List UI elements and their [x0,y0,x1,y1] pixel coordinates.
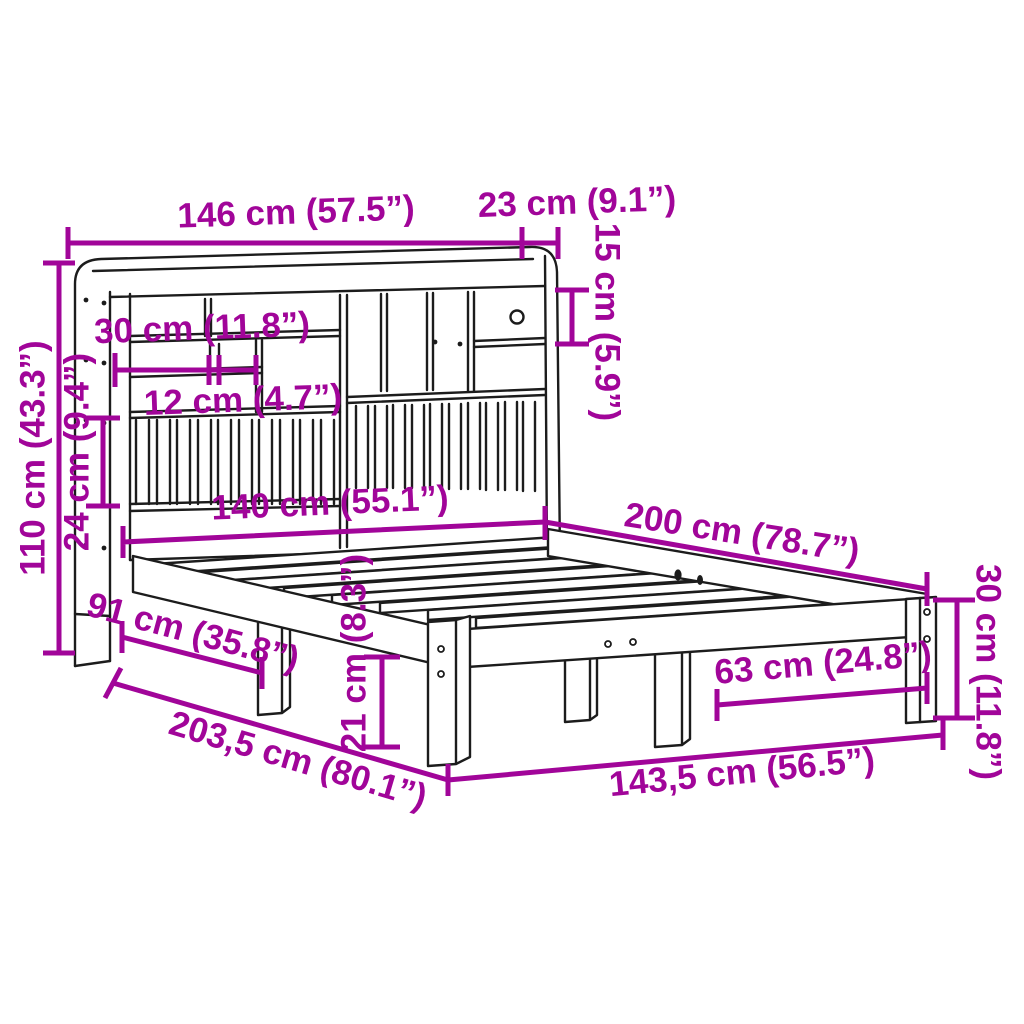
screw-icon [438,671,444,677]
screw-dot [102,361,107,366]
cubby-dot [433,340,438,345]
headboard-top-back-edge [93,259,533,271]
diagram-canvas: 146 cm (57.5”) 23 cm (9.1”) 15 cm (5.9”)… [0,0,1024,1024]
label-drawer-height: 15 cm (5.9”) [588,223,627,421]
label-total-height: 110 cm (43.3”) [14,340,53,575]
headboard-right-dividers [381,293,433,391]
screw-icon [630,639,636,645]
dimension-labels: 146 cm (57.5”) 23 cm (9.1”) 15 cm (5.9”)… [14,179,1008,817]
wood-knot [674,569,681,580]
cubby-dot [458,342,463,347]
bed-leg-front-corner [428,616,470,766]
headboard-right-shelf [347,389,545,403]
label-underbed-clearance: 21 cm (8.3”) [335,554,374,752]
drawer-bottom [474,338,545,347]
screw-icon [924,609,930,615]
screw-icon [438,646,444,652]
dim-line-drawer-height [555,290,589,344]
wood-knot [697,575,703,585]
dimension-diagram: 146 cm (57.5”) 23 cm (9.1”) 15 cm (5.9”)… [0,0,1024,1024]
label-headboard-width: 146 cm (57.5”) [177,188,416,235]
label-frame-height: 30 cm (11.8”) [969,564,1008,780]
label-cubby-width: 12 cm (4.7”) [143,377,343,423]
label-total-length: 203,5 cm (80.1”) [165,703,432,816]
headboard-top-shelf [110,286,545,297]
screw-dot [102,301,107,306]
label-frame-outer-width: 143,5 cm (56.5”) [607,740,876,804]
label-shelf-width: 30 cm (11.8”) [93,305,310,352]
label-bed-inner-width: 140 cm (55.1”) [211,478,450,527]
label-headboard-depth: 23 cm (9.1”) [477,179,677,225]
label-slat-panel-height: 24 cm (9.4”) [58,353,97,551]
screw-icon [605,641,611,647]
screw-dot [84,298,89,303]
screw-dot [102,546,107,551]
drawer-knob [511,311,524,324]
